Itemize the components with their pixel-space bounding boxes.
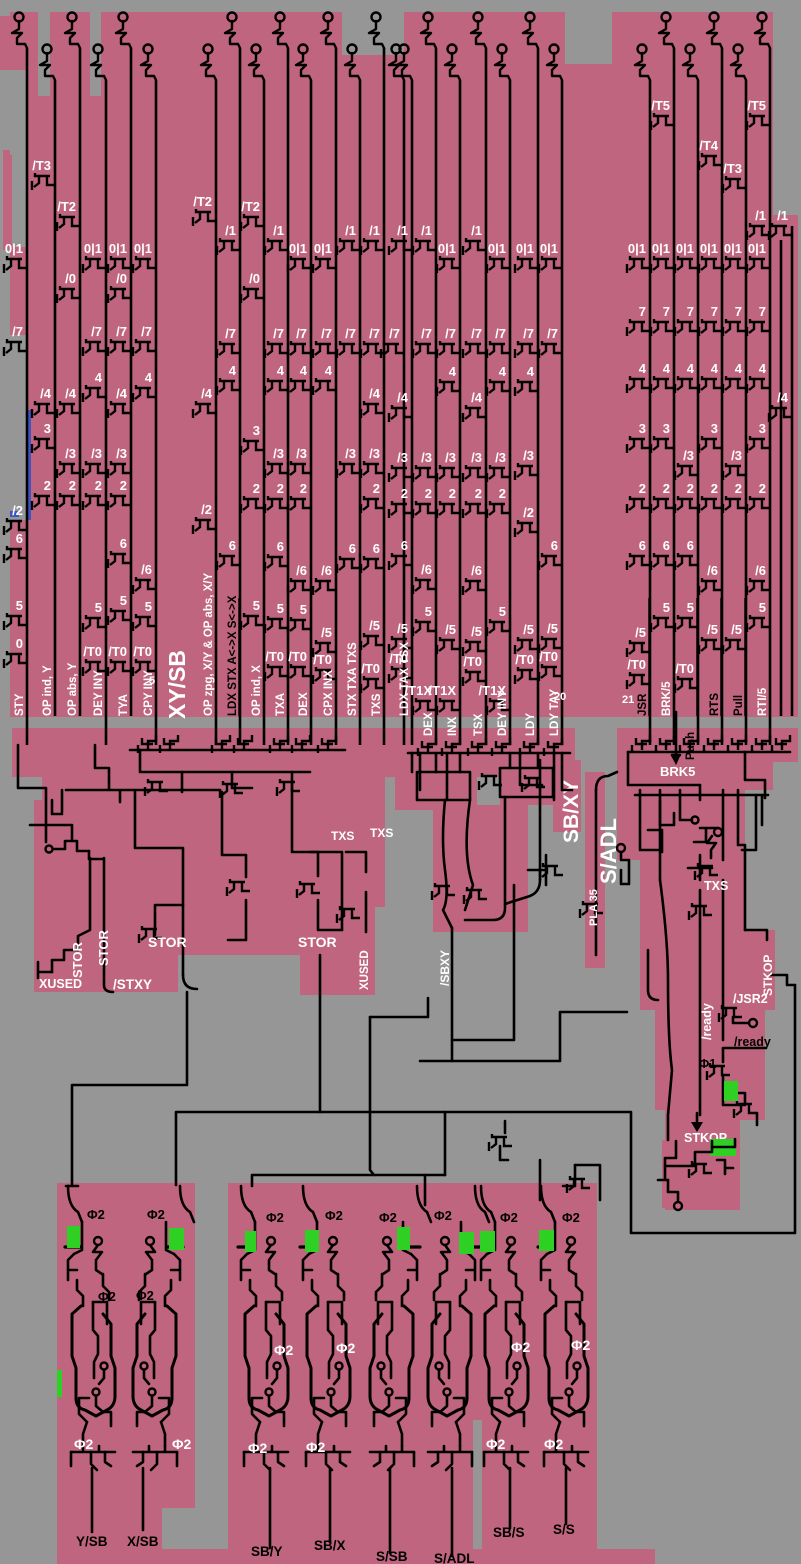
- svg-text:/1: /1: [471, 223, 482, 238]
- svg-text:/6: /6: [707, 563, 718, 578]
- svg-text:4: 4: [735, 361, 743, 376]
- svg-text:/T3: /T3: [723, 161, 742, 176]
- svg-text:7: 7: [735, 304, 742, 319]
- svg-text:5: 5: [300, 602, 307, 617]
- svg-text:/5: /5: [321, 625, 332, 640]
- svg-text:RTI/5: RTI/5: [757, 687, 769, 716]
- svg-text:STOR: STOR: [96, 930, 111, 966]
- svg-text:0|1: 0|1: [652, 241, 670, 256]
- svg-text:XUSED: XUSED: [359, 950, 371, 990]
- svg-text:/STXY: /STXY: [113, 977, 152, 992]
- svg-text:/4: /4: [201, 386, 213, 401]
- svg-text:/3: /3: [523, 448, 534, 463]
- svg-text:Φ1: Φ1: [699, 1057, 716, 1071]
- svg-text:2: 2: [401, 486, 408, 501]
- svg-text:Φ2: Φ2: [379, 1210, 397, 1225]
- svg-text:/3: /3: [273, 446, 284, 461]
- svg-text:TYA: TYA: [118, 694, 130, 716]
- svg-text:/5: /5: [547, 621, 558, 636]
- svg-text:4: 4: [499, 364, 507, 379]
- svg-text:TSX: TSX: [473, 713, 485, 736]
- svg-text:0|1: 0|1: [676, 241, 694, 256]
- svg-text:PLA 35: PLA 35: [588, 889, 600, 926]
- svg-text:2: 2: [69, 478, 76, 493]
- svg-text:6: 6: [401, 538, 408, 553]
- svg-text:/T5: /T5: [747, 98, 766, 113]
- svg-text:0|1: 0|1: [5, 241, 23, 256]
- svg-text:6: 6: [663, 538, 670, 553]
- svg-text:4: 4: [277, 363, 285, 378]
- svg-text:/7: /7: [345, 326, 356, 341]
- svg-text:/7: /7: [321, 326, 332, 341]
- svg-text:2: 2: [475, 486, 482, 501]
- svg-text:STKOP: STKOP: [761, 955, 775, 996]
- svg-text:/6: /6: [421, 562, 432, 577]
- svg-text:21: 21: [622, 694, 634, 706]
- svg-text:/0: /0: [249, 271, 260, 286]
- svg-text:/1: /1: [755, 208, 766, 223]
- svg-text:TXS: TXS: [371, 693, 383, 716]
- svg-text:/7: /7: [369, 326, 380, 341]
- svg-text:/4: /4: [471, 390, 483, 405]
- svg-text:3: 3: [44, 421, 51, 436]
- svg-text:X/SB: X/SB: [127, 1534, 159, 1549]
- svg-text:Φ2: Φ2: [136, 1288, 154, 1303]
- svg-text:TXS: TXS: [331, 829, 354, 843]
- svg-text:Φ2: Φ2: [87, 1207, 105, 1222]
- svg-text:/1: /1: [225, 223, 236, 238]
- svg-text:XY/SB: XY/SB: [164, 650, 190, 719]
- svg-text:/5: /5: [523, 622, 534, 637]
- svg-text:0: 0: [16, 636, 23, 651]
- svg-text:/T0: /T0: [515, 652, 534, 667]
- svg-text:3: 3: [253, 423, 260, 438]
- svg-text:S/ADL: S/ADL: [434, 1551, 475, 1564]
- svg-text:Φ2: Φ2: [74, 1436, 93, 1452]
- svg-text:/3: /3: [683, 448, 694, 463]
- svg-text:Φ2: Φ2: [147, 1207, 165, 1222]
- svg-text:5: 5: [425, 604, 432, 619]
- svg-text:0|1: 0|1: [700, 241, 718, 256]
- svg-text:2: 2: [663, 481, 670, 496]
- svg-text:OP ind, X: OP ind, X: [251, 665, 263, 716]
- svg-text:/6: /6: [321, 563, 332, 578]
- svg-text:4: 4: [95, 370, 103, 385]
- svg-text:0|1: 0|1: [314, 241, 332, 256]
- svg-text:DEY INY: DEY INY: [497, 690, 509, 736]
- svg-text:Pull: Pull: [733, 695, 745, 716]
- svg-text:/1: /1: [273, 223, 284, 238]
- svg-text:/7: /7: [445, 326, 456, 341]
- svg-text:/0: /0: [65, 271, 76, 286]
- svg-text:S/S: S/S: [553, 1522, 575, 1537]
- svg-text:/T0: /T0: [675, 661, 694, 676]
- svg-text:/4: /4: [777, 390, 789, 405]
- svg-text:/5: /5: [635, 625, 646, 640]
- svg-text:2: 2: [735, 481, 742, 496]
- svg-text:JSR: JSR: [637, 693, 649, 716]
- svg-text:4: 4: [687, 361, 695, 376]
- svg-text:2: 2: [499, 486, 506, 501]
- svg-text:7: 7: [711, 304, 718, 319]
- svg-text:/ready: /ready: [734, 1035, 771, 1049]
- svg-text:4: 4: [325, 363, 333, 378]
- svg-text:2: 2: [300, 481, 307, 496]
- svg-text:/5: /5: [731, 622, 742, 637]
- svg-text:OP abs, Y: OP abs, Y: [67, 662, 79, 716]
- svg-text:SB/S: SB/S: [493, 1525, 525, 1540]
- svg-text:2: 2: [687, 481, 694, 496]
- svg-text:0|1: 0|1: [724, 241, 742, 256]
- svg-text:BRK/5: BRK/5: [661, 681, 673, 716]
- svg-text:7: 7: [639, 304, 646, 319]
- svg-text:3: 3: [663, 421, 670, 436]
- svg-text:OP ind, Y: OP ind, Y: [42, 665, 54, 716]
- svg-text:/T0: /T0: [288, 649, 307, 664]
- svg-text:/T0: /T0: [539, 649, 558, 664]
- svg-text:5: 5: [120, 593, 127, 608]
- svg-text:/4: /4: [116, 386, 128, 401]
- svg-text:5: 5: [759, 600, 766, 615]
- svg-text:3: 3: [639, 421, 646, 436]
- svg-text:S/SB: S/SB: [376, 1549, 408, 1564]
- svg-text:Φ2: Φ2: [571, 1337, 590, 1353]
- svg-text:0|1: 0|1: [540, 241, 558, 256]
- svg-text:/7: /7: [91, 324, 102, 339]
- svg-text:/1: /1: [421, 223, 432, 238]
- svg-text:6: 6: [687, 538, 694, 553]
- svg-text:SB/Y: SB/Y: [251, 1544, 283, 1559]
- svg-text:6: 6: [639, 538, 646, 553]
- svg-text:/T5: /T5: [651, 98, 670, 113]
- svg-text:6: 6: [229, 538, 236, 553]
- svg-text:7: 7: [687, 304, 694, 319]
- svg-text:/6: /6: [296, 563, 307, 578]
- svg-text:/3: /3: [296, 446, 307, 461]
- svg-text:STOR: STOR: [148, 934, 187, 950]
- svg-text:2: 2: [253, 481, 260, 496]
- svg-text:LDX STX A<->X S<->X: LDX STX A<->X S<->X: [227, 595, 239, 716]
- svg-text:Φ2: Φ2: [172, 1436, 191, 1452]
- svg-text:/7: /7: [296, 326, 307, 341]
- svg-text:Φ2: Φ2: [486, 1436, 505, 1452]
- svg-text:5: 5: [145, 599, 152, 614]
- svg-text:2: 2: [425, 486, 432, 501]
- svg-text:Φ2: Φ2: [306, 1439, 325, 1455]
- svg-text:2: 2: [120, 478, 127, 493]
- svg-text:/7: /7: [116, 324, 127, 339]
- svg-text:20: 20: [554, 691, 566, 703]
- svg-text:4: 4: [527, 364, 535, 379]
- svg-text:/4: /4: [397, 390, 409, 405]
- svg-text:0|1: 0|1: [748, 241, 766, 256]
- svg-text:OP zpg, X/Y & OP abs, X/Y: OP zpg, X/Y & OP abs, X/Y: [203, 573, 215, 716]
- svg-text:/7: /7: [471, 326, 482, 341]
- svg-text:/6: /6: [471, 563, 482, 578]
- svg-text:/T0: /T0: [361, 661, 380, 676]
- svg-text:4: 4: [300, 363, 308, 378]
- svg-text:7: 7: [663, 304, 670, 319]
- svg-text:/T2: /T2: [193, 194, 212, 209]
- svg-text:/T0: /T0: [627, 657, 646, 672]
- svg-text:/7: /7: [495, 326, 506, 341]
- svg-text:/T0: /T0: [108, 644, 127, 659]
- svg-text:/T3: /T3: [32, 158, 51, 173]
- svg-text:6: 6: [349, 541, 356, 556]
- svg-text:0|1: 0|1: [516, 241, 534, 256]
- svg-text:/T0: /T0: [83, 644, 102, 659]
- svg-text:/T0: /T0: [133, 644, 152, 659]
- svg-text:/3: /3: [495, 450, 506, 465]
- svg-text:/7: /7: [389, 326, 400, 341]
- svg-text:4: 4: [229, 363, 237, 378]
- svg-text:/1: /1: [345, 223, 356, 238]
- svg-text:LDX TAX TSX: LDX TAX TSX: [399, 642, 411, 716]
- svg-text:Φ2: Φ2: [336, 1340, 355, 1356]
- svg-text:/6: /6: [755, 563, 766, 578]
- svg-text:2: 2: [277, 481, 284, 496]
- svg-text:4: 4: [759, 361, 767, 376]
- svg-text:SB/X: SB/X: [314, 1538, 346, 1553]
- svg-text:4: 4: [449, 364, 457, 379]
- svg-text:/3: /3: [116, 446, 127, 461]
- svg-text:2: 2: [95, 478, 102, 493]
- svg-text:/2: /2: [12, 503, 23, 518]
- svg-text:/4: /4: [40, 386, 52, 401]
- svg-text:0|1: 0|1: [109, 241, 127, 256]
- svg-text:/SBXY: /SBXY: [438, 950, 452, 986]
- svg-text:/T4: /T4: [699, 138, 719, 153]
- svg-text:/1: /1: [397, 223, 408, 238]
- svg-text:/2: /2: [201, 502, 212, 517]
- svg-text:Φ2: Φ2: [511, 1339, 530, 1355]
- svg-text:/7: /7: [12, 324, 23, 339]
- svg-text:/JSR2: /JSR2: [733, 992, 768, 1006]
- svg-text:/0: /0: [116, 271, 127, 286]
- svg-text:5: 5: [149, 675, 155, 687]
- svg-text:0|1: 0|1: [438, 241, 456, 256]
- svg-text:2: 2: [639, 481, 646, 496]
- svg-text:Φ2: Φ2: [325, 1208, 343, 1223]
- svg-text:7: 7: [759, 304, 766, 319]
- svg-text:/1: /1: [369, 223, 380, 238]
- svg-text:/7: /7: [225, 326, 236, 341]
- svg-text:4: 4: [711, 361, 719, 376]
- svg-text:4: 4: [639, 361, 647, 376]
- svg-text:/T0: /T0: [265, 649, 284, 664]
- svg-text:0|1: 0|1: [289, 241, 307, 256]
- svg-text:/3: /3: [91, 446, 102, 461]
- svg-text:/3: /3: [421, 450, 432, 465]
- svg-text:Φ2: Φ2: [544, 1436, 563, 1452]
- svg-text:/T0: /T0: [313, 652, 332, 667]
- svg-text:/T1X: /T1X: [429, 683, 457, 698]
- svg-text:TXA: TXA: [275, 693, 287, 716]
- svg-text:5: 5: [16, 598, 23, 613]
- svg-text:/4: /4: [369, 386, 381, 401]
- svg-text:/3: /3: [345, 446, 356, 461]
- svg-text:6: 6: [277, 539, 284, 554]
- svg-text:TXS: TXS: [704, 879, 728, 893]
- svg-text:2: 2: [759, 481, 766, 496]
- svg-text:/5: /5: [471, 624, 482, 639]
- svg-text:DEX: DEX: [298, 692, 310, 716]
- svg-text:/7: /7: [141, 324, 152, 339]
- svg-text:Φ2: Φ2: [500, 1210, 518, 1225]
- svg-text:STOR: STOR: [70, 942, 85, 978]
- svg-text:/3: /3: [471, 450, 482, 465]
- svg-text:/5: /5: [445, 622, 456, 637]
- svg-text:/5: /5: [707, 622, 718, 637]
- svg-text:DEX: DEX: [423, 712, 435, 736]
- svg-text:5: 5: [663, 600, 670, 615]
- svg-text:3: 3: [759, 421, 766, 436]
- svg-text:0|1: 0|1: [488, 241, 506, 256]
- svg-text:/3: /3: [369, 446, 380, 461]
- svg-text:Φ2: Φ2: [562, 1210, 580, 1225]
- svg-text:TXS: TXS: [370, 826, 393, 840]
- svg-text:3: 3: [711, 421, 718, 436]
- svg-text:Φ2: Φ2: [248, 1440, 267, 1456]
- svg-text:RTS: RTS: [709, 693, 721, 716]
- svg-text:/ready: /ready: [700, 1003, 714, 1040]
- svg-text:/5: /5: [369, 618, 380, 633]
- svg-text:5: 5: [253, 598, 260, 613]
- svg-text:Φ2: Φ2: [266, 1210, 284, 1225]
- svg-text:5: 5: [687, 600, 694, 615]
- svg-text:/3: /3: [731, 448, 742, 463]
- svg-text:/T2: /T2: [57, 199, 76, 214]
- svg-text:/3: /3: [65, 446, 76, 461]
- svg-text:/T2: /T2: [241, 199, 260, 214]
- svg-text:DEY INY: DEY INY: [93, 670, 105, 716]
- svg-text:0|1: 0|1: [134, 241, 152, 256]
- svg-text:Φ2: Φ2: [434, 1208, 452, 1223]
- svg-text:/2: /2: [523, 505, 534, 520]
- svg-text:2: 2: [44, 478, 51, 493]
- svg-text:5: 5: [499, 604, 506, 619]
- svg-text:6: 6: [16, 531, 23, 546]
- svg-text:5: 5: [277, 601, 284, 616]
- svg-text:0|1: 0|1: [628, 241, 646, 256]
- svg-text:STOR: STOR: [298, 934, 337, 950]
- svg-text:4: 4: [663, 361, 671, 376]
- svg-text:6: 6: [551, 538, 558, 553]
- svg-text:2: 2: [373, 481, 380, 496]
- svg-text:Φ2: Φ2: [274, 1342, 293, 1358]
- svg-text:LDY: LDY: [525, 713, 537, 736]
- svg-text:2: 2: [711, 481, 718, 496]
- svg-text:/5: /5: [397, 621, 408, 636]
- svg-text:BRK5: BRK5: [660, 764, 695, 779]
- svg-text:STX TXA TXS: STX TXA TXS: [347, 642, 359, 716]
- svg-text:/6: /6: [141, 562, 152, 577]
- svg-text:/T0: /T0: [463, 654, 482, 669]
- svg-text:/4: /4: [65, 386, 77, 401]
- svg-text:INX: INX: [447, 717, 459, 737]
- svg-text:/7: /7: [547, 326, 558, 341]
- svg-text:/1: /1: [777, 208, 788, 223]
- svg-text:4: 4: [145, 370, 153, 385]
- svg-text:/7: /7: [523, 326, 534, 341]
- svg-text:CPX INX: CPX INX: [323, 670, 335, 716]
- svg-text:Φ2: Φ2: [98, 1289, 116, 1304]
- svg-text:XUSED: XUSED: [39, 977, 82, 991]
- svg-text:6: 6: [373, 541, 380, 556]
- svg-text:STY: STY: [14, 693, 26, 716]
- svg-text:0|1: 0|1: [84, 241, 102, 256]
- svg-text:5: 5: [95, 600, 102, 615]
- svg-text:/7: /7: [421, 326, 432, 341]
- svg-text:Y/SB: Y/SB: [76, 1534, 108, 1549]
- svg-text:/3: /3: [397, 450, 408, 465]
- svg-text:/7: /7: [273, 326, 284, 341]
- svg-text:6: 6: [120, 536, 127, 551]
- svg-text:/3: /3: [445, 450, 456, 465]
- svg-text:2: 2: [449, 486, 456, 501]
